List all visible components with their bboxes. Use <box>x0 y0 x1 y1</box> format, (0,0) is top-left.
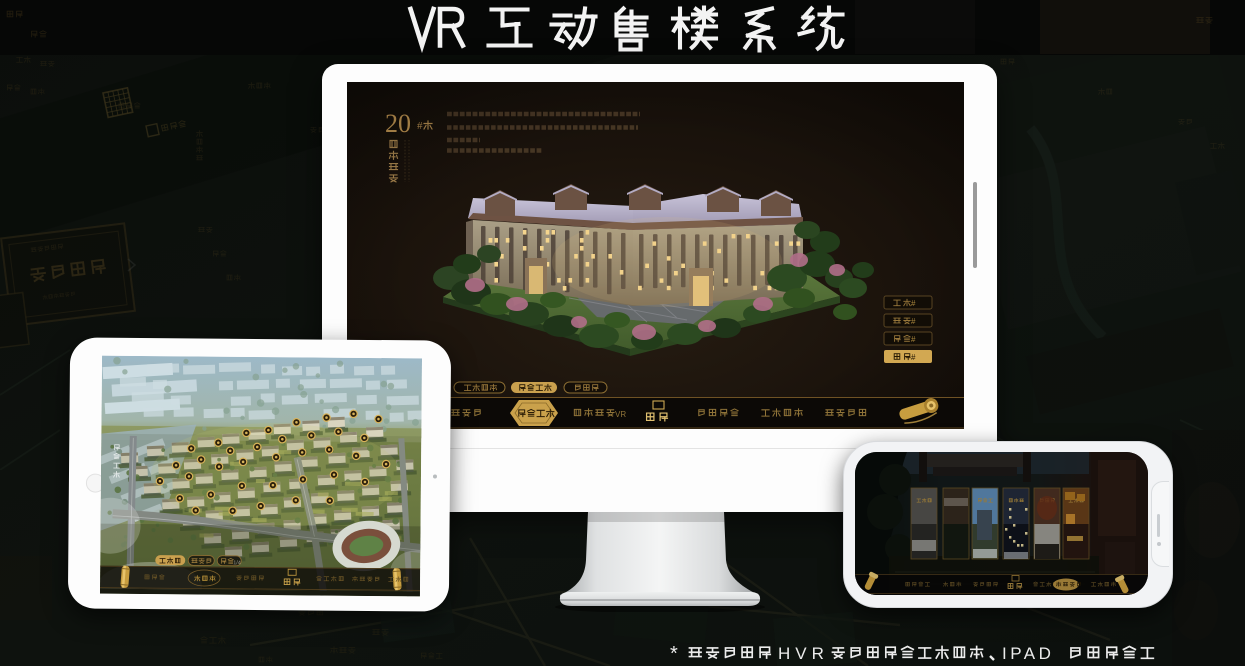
svg-text:#: # <box>911 299 916 308</box>
svg-text:VR: VR <box>615 410 626 419</box>
svg-text:IPAD: IPAD <box>1002 644 1054 663</box>
svg-text:#: # <box>911 317 916 326</box>
svg-text:*: * <box>670 643 678 665</box>
svg-text:HVR: HVR <box>778 644 829 663</box>
svg-text:#: # <box>911 335 916 344</box>
svg-text:1/4: 1/4 <box>233 560 241 566</box>
svg-text:#: # <box>911 353 916 362</box>
